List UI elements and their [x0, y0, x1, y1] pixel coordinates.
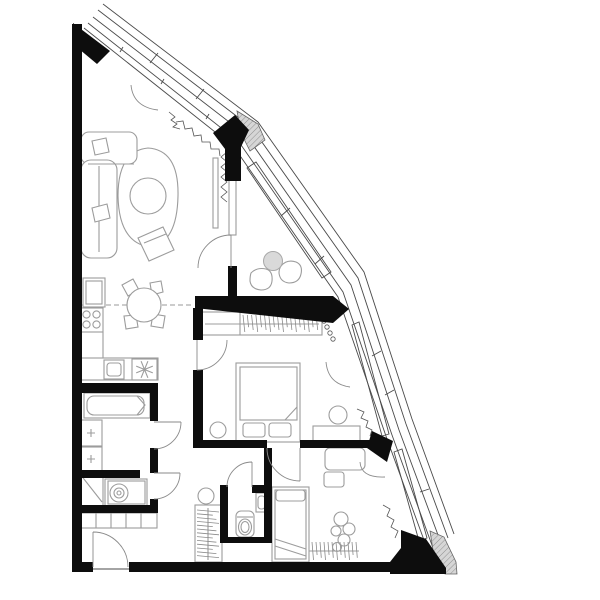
bedroom-desk: [313, 426, 360, 442]
office-seat: [324, 472, 344, 487]
wc-bottom-wall: [220, 537, 272, 543]
terrace-chair: [250, 269, 272, 291]
left-wall: [72, 24, 82, 572]
mid-wall-right: [300, 440, 374, 448]
bath-right-wall-b: [150, 448, 158, 473]
terrace-wall-stub: [228, 266, 237, 298]
cooktop: [80, 308, 103, 332]
office-desk: [325, 448, 365, 470]
bed-pillow: [269, 423, 291, 437]
washing-machine: [105, 479, 147, 506]
hall-wall-lower: [193, 370, 203, 448]
closet-row: [80, 513, 157, 528]
hall-stool: [198, 488, 214, 504]
bath-right-wall-a: [150, 393, 158, 421]
hall-band-wall: [72, 505, 158, 513]
bed-pillow: [243, 423, 265, 437]
mid-wall-left: [193, 440, 267, 448]
sofa-cushion: [92, 138, 109, 155]
floor-plan: [0, 0, 600, 600]
floor-plan-canvas: [0, 0, 600, 600]
bath-divider-wall: [72, 470, 140, 478]
bedroom-stool: [210, 422, 226, 438]
dining-table: [127, 288, 161, 322]
wc-left-wall: [220, 485, 228, 543]
bath-top-wall: [72, 383, 158, 393]
wc-right-wall: [264, 448, 272, 543]
hall-wall-upper: [193, 308, 203, 340]
coffee-table: [130, 178, 166, 214]
bottom-wall-main: [129, 562, 424, 572]
bottom-wall-left: [72, 562, 93, 572]
bedroom-desk-chair: [329, 406, 347, 424]
sofa-top: [81, 132, 137, 164]
terrace-table: [264, 252, 283, 271]
